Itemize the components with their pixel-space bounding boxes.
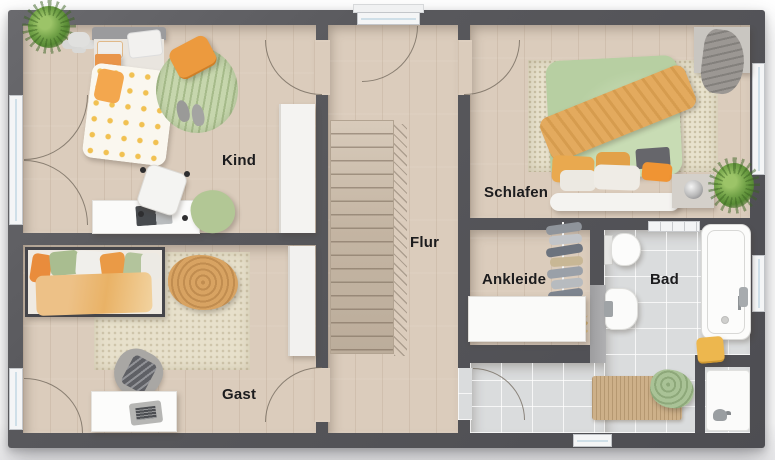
sink-faucet xyxy=(604,301,613,317)
staircase-hatching xyxy=(394,124,407,356)
kind-wardrobe xyxy=(279,104,315,233)
bathtub-faucet xyxy=(739,287,748,307)
bad-window-bottom xyxy=(573,434,612,447)
gast-duvet xyxy=(35,272,152,316)
schlafen-pillow-bright xyxy=(641,162,672,183)
bathtub-drain xyxy=(721,316,729,324)
yellow-stool xyxy=(696,336,725,364)
floor-plan: Kind Gast Flur Schlafen Ankleide Bad xyxy=(0,0,775,460)
schlafen-pillow-white2 xyxy=(594,164,641,191)
kind-plant xyxy=(28,6,70,48)
room-label-kind: Kind xyxy=(222,152,256,169)
schlafen-pillow-white1 xyxy=(560,170,596,191)
room-label-flur: Flur xyxy=(410,234,439,251)
gast-wardrobe xyxy=(288,246,315,356)
shower-tray xyxy=(706,370,750,431)
shower-wall-side xyxy=(695,367,705,433)
bad-door-opening xyxy=(458,368,472,420)
cloud-shelf xyxy=(68,32,90,47)
gast-window xyxy=(9,368,23,430)
schlafen-footboard xyxy=(550,193,680,211)
bad-window-right xyxy=(752,255,765,312)
kind-bed-pillow-white xyxy=(127,29,164,59)
schlafen-window xyxy=(752,63,765,175)
schlafen-plant xyxy=(714,163,754,208)
room-label-schlafen: Schlafen xyxy=(484,184,548,201)
gast-radio-grille xyxy=(135,406,156,420)
kind-window xyxy=(9,95,23,225)
staircase xyxy=(330,120,394,354)
room-label-bad: Bad xyxy=(650,271,679,288)
bad-vanity-wall xyxy=(590,285,606,363)
room-label-ankleide: Ankleide xyxy=(482,271,546,288)
gast-knit-blanket xyxy=(168,255,238,310)
flur-window xyxy=(357,12,420,25)
desk-chair-casters xyxy=(140,167,146,173)
ankleide-counter xyxy=(468,296,586,342)
toilet-bowl xyxy=(611,233,641,266)
shower-fixture xyxy=(713,409,727,421)
towel-radiator xyxy=(648,221,700,232)
table-lamp xyxy=(684,180,703,199)
room-label-gast: Gast xyxy=(222,386,256,403)
